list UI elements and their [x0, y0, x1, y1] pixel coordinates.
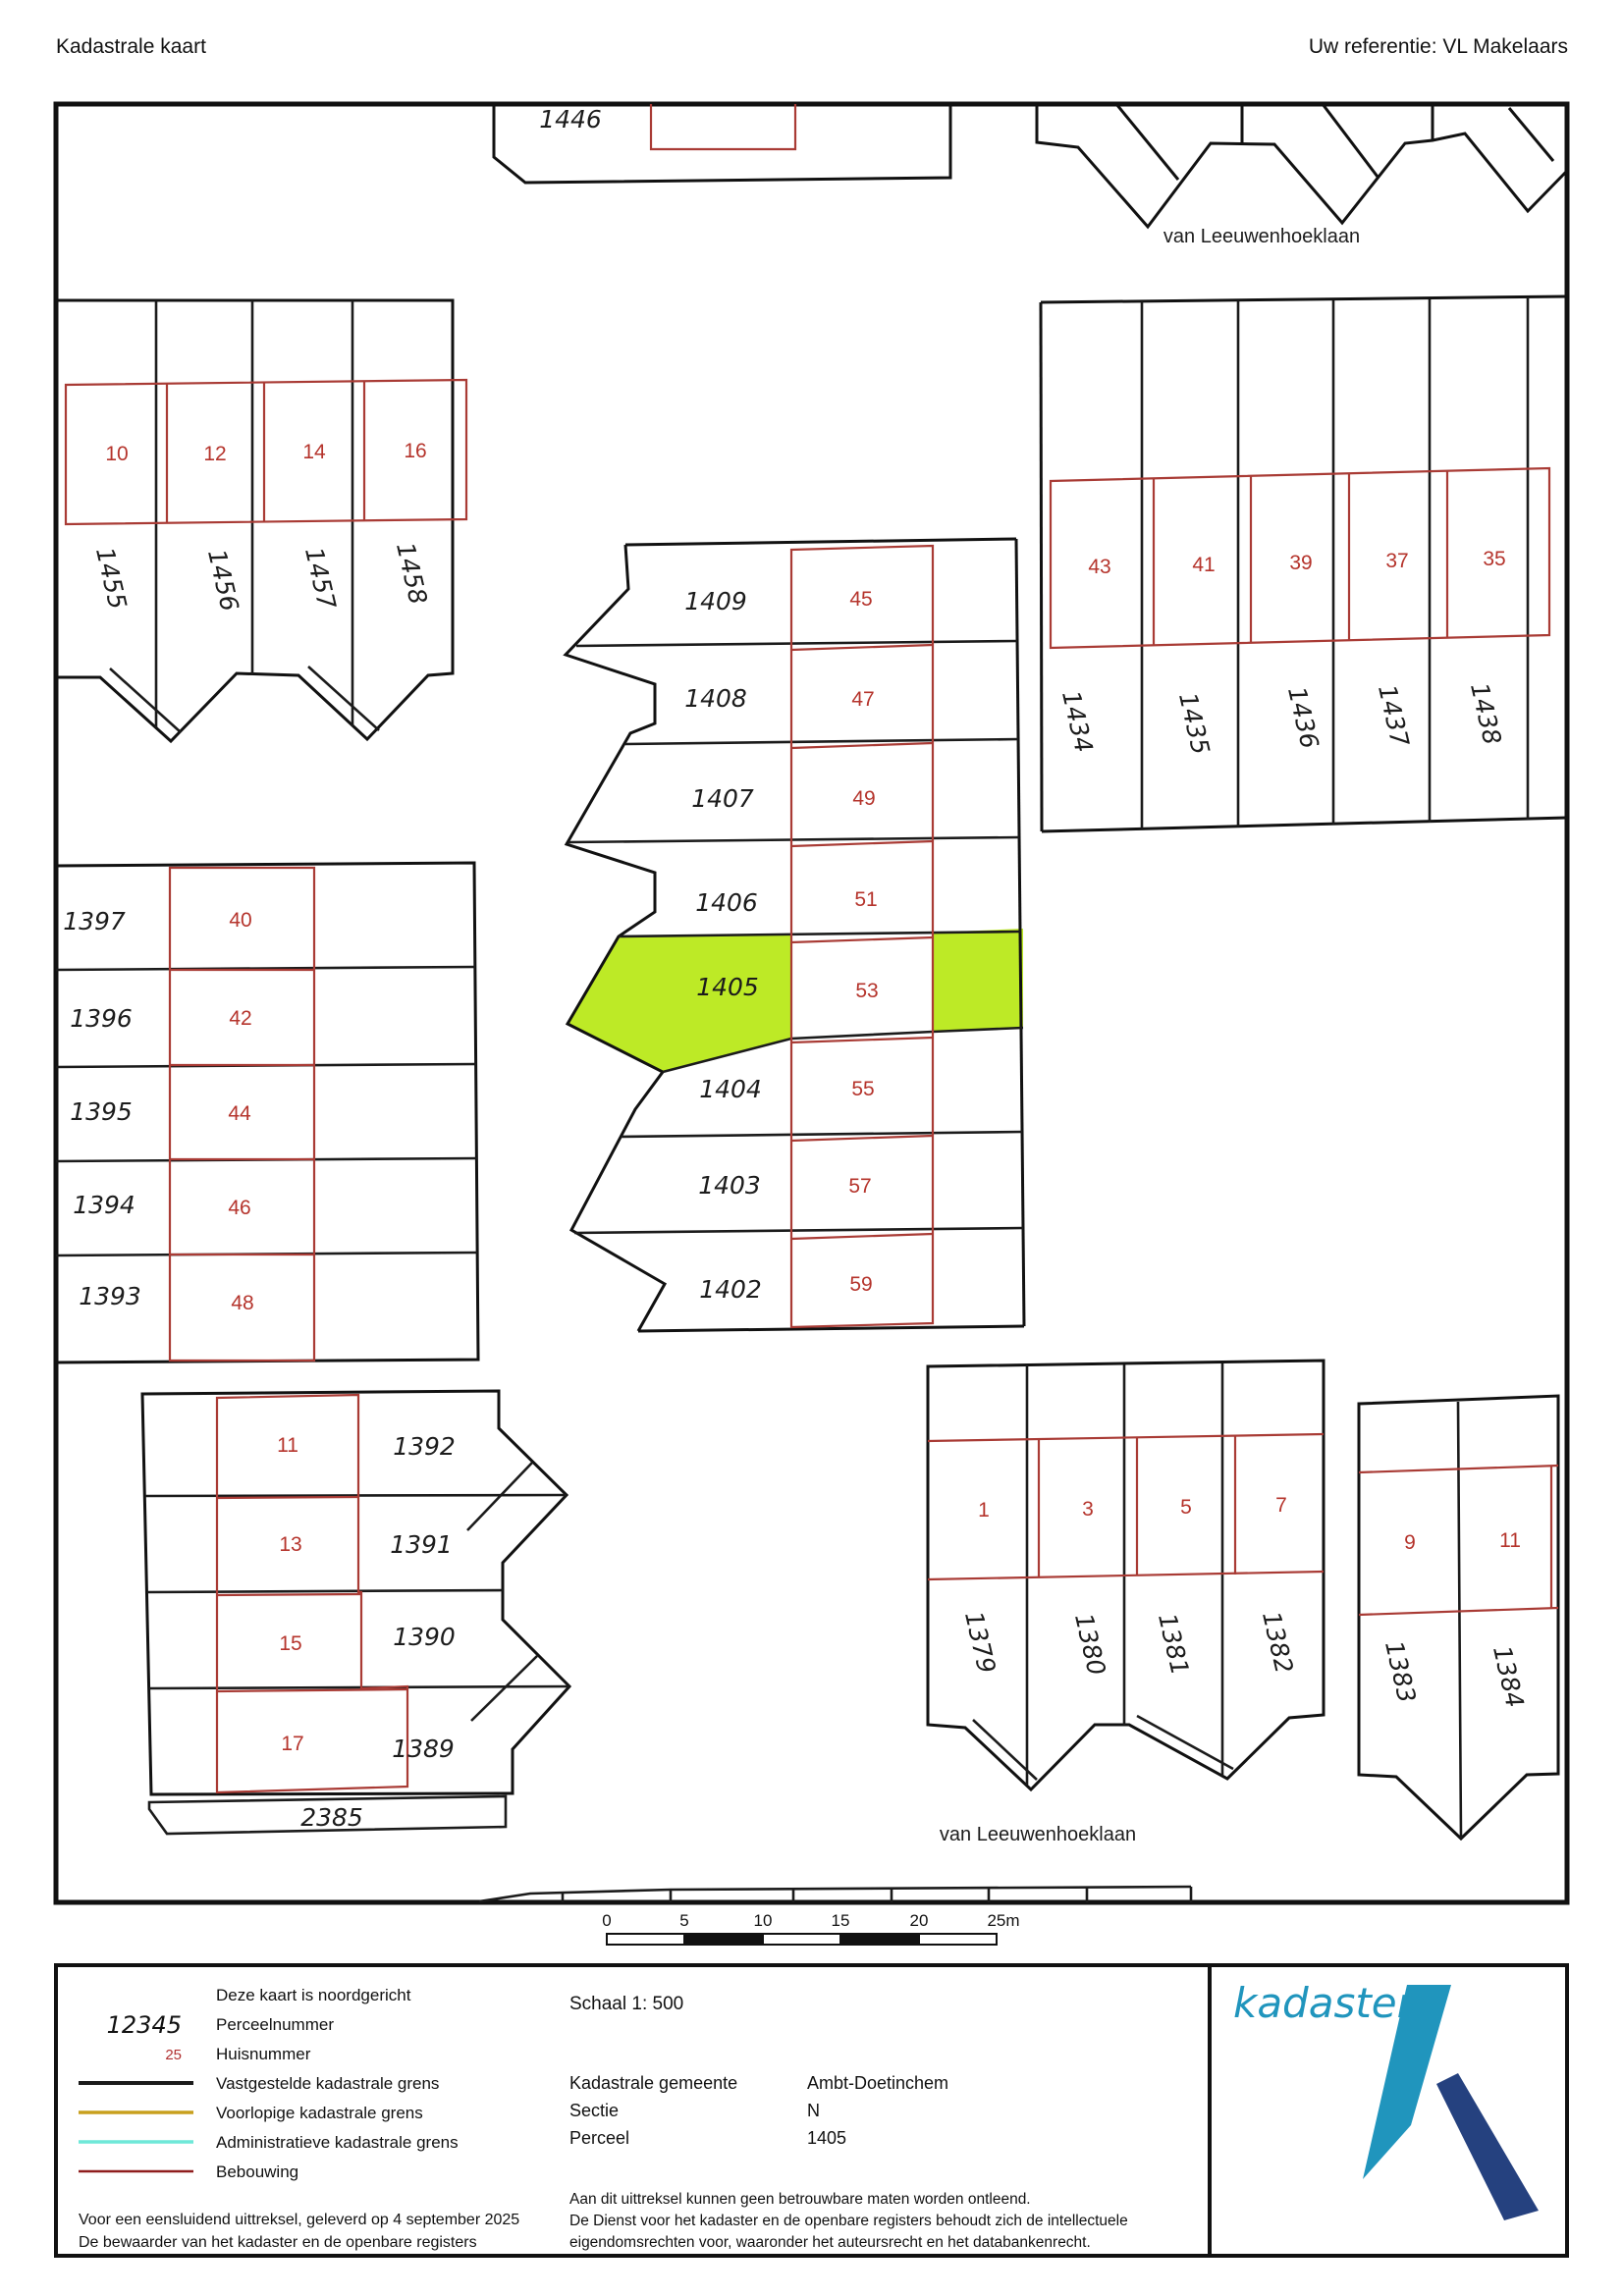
parcel-number-label: 1395 — [70, 1097, 133, 1126]
scale-bar-tick-label: 25m — [987, 1911, 1019, 1930]
parcel-number-label: 1390 — [393, 1623, 456, 1651]
scale-bar-labels: 0510152025m — [602, 1911, 1019, 1930]
kadaster-logo-text: kadaster — [1233, 1979, 1417, 2027]
house-number-label: 41 — [1192, 554, 1215, 576]
scale-bar-segment — [763, 1934, 840, 1945]
gemeente-label: Kadastrale gemeente — [569, 2073, 737, 2093]
house-number-label: 53 — [855, 980, 878, 1002]
cadastral-map-document: Kadastrale kaart Uw referentie: VL Makel… — [0, 0, 1623, 2296]
house-number-label: 3 — [1082, 1498, 1094, 1521]
parcel-number-label: 1404 — [699, 1075, 762, 1103]
page-title: Kadastrale kaart — [56, 35, 206, 58]
parcel-number-label: 1392 — [393, 1432, 456, 1461]
parcel-number-label: 1408 — [684, 684, 747, 713]
parcel-number-label: 1403 — [698, 1171, 761, 1200]
scale-bar-segment — [840, 1934, 919, 1945]
legend-footer-line2: De bewaarder van het kadaster en de open… — [79, 2234, 477, 2251]
sectie-value: N — [807, 2101, 820, 2120]
house-number-label: 51 — [854, 888, 877, 911]
scale-bar-segment — [919, 1934, 997, 1945]
house-number-label: 13 — [279, 1533, 301, 1556]
house-number-label: 10 — [105, 443, 128, 465]
house-number-label: 49 — [852, 787, 875, 810]
disclaimer-line3: eigendomsrechten voor, waaronder het aut… — [569, 2234, 1091, 2251]
kadaster-logo-bar-icon — [1436, 2073, 1539, 2220]
scale-bar-tick-label: 10 — [754, 1911, 773, 1930]
house-number-label: 15 — [279, 1632, 301, 1655]
legend-footer-line1: Voor een eensluidend uittreksel, gelever… — [79, 2212, 519, 2228]
house-number-label: 17 — [281, 1733, 303, 1755]
gemeente-value: Ambt-Doetinchem — [807, 2073, 948, 2093]
scale-bar-segment — [607, 1934, 684, 1945]
parcel-number-label: 1396 — [70, 1004, 133, 1033]
house-number-label: 16 — [404, 440, 426, 462]
house-number-label: 9 — [1404, 1531, 1416, 1554]
house-number-label: 43 — [1088, 556, 1110, 578]
house-number-label: 45 — [849, 588, 872, 611]
house-number-label: 57 — [848, 1175, 871, 1198]
legend-voorlopige-label: Voorlopige kadastrale grens — [216, 2104, 423, 2122]
disclaimer-line1: Aan dit uittreksel kunnen geen betrouwba… — [569, 2191, 1031, 2208]
house-number-label: 1 — [978, 1499, 990, 1522]
kadaster-logo: kadaster — [1233, 1979, 1539, 2220]
house-number-label: 55 — [851, 1078, 874, 1100]
house-number-label: 48 — [231, 1292, 253, 1314]
house-number-label: 59 — [849, 1273, 872, 1296]
parcel-number-label: 1446 — [539, 105, 602, 133]
legend-perceelnummer-sample: 12345 — [107, 2011, 182, 2039]
legend-box: Deze kaart is noordgericht 12345 Perceel… — [56, 1965, 1567, 2256]
kadastrale-kaart-page: Kadastrale kaart Uw referentie: VL Makel… — [0, 0, 1623, 2296]
parcel-number-label: 2385 — [300, 1803, 363, 1832]
perceel-value: 1405 — [807, 2128, 846, 2148]
scale-bar-tick-label: 20 — [910, 1911, 929, 1930]
reference-text: Uw referentie: VL Makelaars — [1309, 35, 1568, 58]
legend-administratieve-label: Administratieve kadastrale grens — [216, 2133, 459, 2152]
parcel-number-label: 1391 — [390, 1530, 453, 1559]
highlight-east — [933, 929, 1023, 1032]
house-number-label: 12 — [203, 443, 226, 465]
house-number-label: 5 — [1180, 1496, 1192, 1519]
sectie-label: Sectie — [569, 2101, 619, 2120]
house-number-label: 37 — [1385, 550, 1408, 572]
scale-bar-tick-label: 5 — [679, 1911, 688, 1930]
parcel-number-label: 1409 — [684, 587, 747, 615]
disclaimer-line2: De Dienst voor het kadaster en de openba… — [569, 2213, 1128, 2229]
legend-huisnummer-label: Huisnummer — [216, 2045, 311, 2063]
legend-vastgestelde-label: Vastgestelde kadastrale grens — [216, 2074, 439, 2093]
house-number-label: 7 — [1275, 1494, 1287, 1517]
parcel-number-label: 1393 — [79, 1282, 141, 1310]
house-number-label: 11 — [277, 1434, 298, 1457]
house-number-label: 47 — [851, 688, 874, 711]
house-number-label: 40 — [229, 909, 251, 932]
parcel-number-label: 1406 — [695, 888, 758, 917]
street-name-label: van Leeuwenhoeklaan — [1163, 226, 1360, 247]
legend-perceelnummer-label: Perceelnummer — [216, 2015, 334, 2034]
legend-bebouwing-label: Bebouwing — [216, 2163, 298, 2181]
parcel-number-label: 1407 — [691, 784, 754, 813]
scale-bar-tick-label: 15 — [832, 1911, 850, 1930]
street-name-label: van Leeuwenhoeklaan — [940, 1824, 1136, 1845]
house-number-label: 42 — [229, 1007, 251, 1030]
parcel-number-label: 1394 — [73, 1191, 135, 1219]
scale-bar-tick-label: 0 — [602, 1911, 611, 1930]
house-number-label: 11 — [1499, 1529, 1521, 1552]
scale-bar: 0510152025m — [602, 1911, 1019, 1945]
parcel-number-label: 1402 — [699, 1275, 762, 1304]
house-number-label: 39 — [1289, 552, 1312, 574]
house-number-label: 44 — [228, 1102, 251, 1125]
legend-huisnummer-sample: 25 — [165, 2047, 182, 2063]
parcel-number-label: 1389 — [392, 1735, 455, 1763]
scale-bar-segment — [684, 1934, 763, 1945]
parcel-number-label: 1397 — [63, 907, 126, 935]
legend-north-label: Deze kaart is noordgericht — [216, 1986, 411, 2004]
scale-text: Schaal 1: 500 — [569, 1994, 683, 2014]
perceel-label: Perceel — [569, 2128, 629, 2148]
parcel-number-label: 1405 — [696, 973, 759, 1001]
house-number-label: 46 — [228, 1197, 250, 1219]
house-number-label: 14 — [302, 441, 326, 463]
house-number-label: 35 — [1483, 548, 1505, 570]
